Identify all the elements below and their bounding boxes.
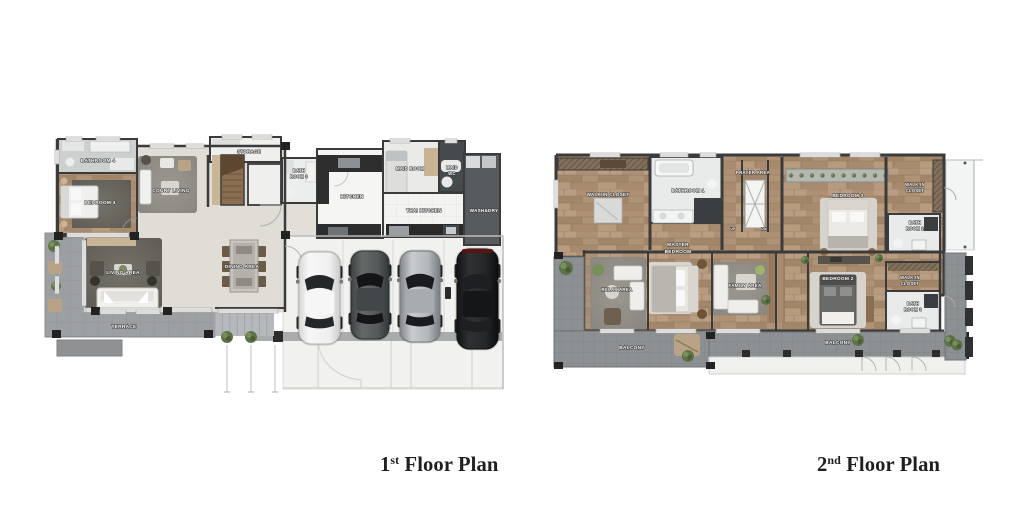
svg-text:MAID ROOM: MAID ROOM — [396, 166, 424, 171]
svg-text:LIVING AREA: LIVING AREA — [106, 270, 140, 276]
svg-text:BATH: BATH — [907, 301, 919, 306]
svg-text:CLOSET: CLOSET — [906, 188, 925, 193]
svg-text:STORAGE: STORAGE — [237, 149, 260, 154]
svg-text:PRAYER AREA: PRAYER AREA — [736, 170, 771, 175]
svg-text:UP: UP — [730, 227, 736, 231]
svg-text:WALK-IN: WALK-IN — [900, 275, 920, 280]
svg-text:BATH: BATH — [909, 220, 921, 225]
svg-text:FAMILY AREA: FAMILY AREA — [728, 283, 762, 288]
svg-text:WALK-IN: WALK-IN — [905, 182, 925, 187]
svg-text:THAI KITCHEN: THAI KITCHEN — [406, 208, 442, 213]
svg-text:WC: WC — [448, 171, 455, 176]
svg-text:DINING AREA: DINING AREA — [225, 264, 260, 270]
svg-text:ROOM 3: ROOM 3 — [904, 307, 922, 312]
svg-text:TERRACE: TERRACE — [112, 324, 137, 330]
svg-text:BEDROOM 4: BEDROOM 4 — [84, 200, 115, 206]
svg-text:RELAX AREA: RELAX AREA — [602, 287, 633, 292]
svg-text:COURT LIVING: COURT LIVING — [152, 188, 189, 194]
svg-text:1st Floor Plan: 1st Floor Plan — [380, 453, 499, 476]
svg-text:CLOSET: CLOSET — [901, 281, 920, 286]
svg-text:ROOM 2: ROOM 2 — [906, 226, 924, 231]
svg-text:WALK IN CLOSET: WALK IN CLOSET — [587, 192, 630, 197]
svg-text:ROOM 3: ROOM 3 — [290, 174, 308, 179]
svg-text:BEDROOM 2: BEDROOM 2 — [822, 276, 853, 282]
svg-text:BATHROOM 4: BATHROOM 4 — [81, 158, 115, 164]
svg-text:MAID: MAID — [446, 165, 458, 170]
svg-text:BATHROOM 1: BATHROOM 1 — [671, 188, 704, 193]
svg-text:KITCHEN: KITCHEN — [340, 194, 363, 200]
svg-text:BEDROOM 3: BEDROOM 3 — [832, 193, 863, 199]
svg-text:BATH: BATH — [293, 168, 305, 173]
svg-text:WASH&DRY: WASH&DRY — [470, 208, 499, 213]
svg-text:BEDROOM: BEDROOM — [665, 249, 692, 255]
svg-text:BALCONY: BALCONY — [619, 345, 645, 351]
svg-text:2nd Floor Plan: 2nd Floor Plan — [817, 453, 941, 476]
svg-text:MASTER: MASTER — [667, 242, 689, 248]
svg-text:BALCONY: BALCONY — [825, 340, 851, 346]
svg-text:DN: DN — [761, 227, 767, 231]
